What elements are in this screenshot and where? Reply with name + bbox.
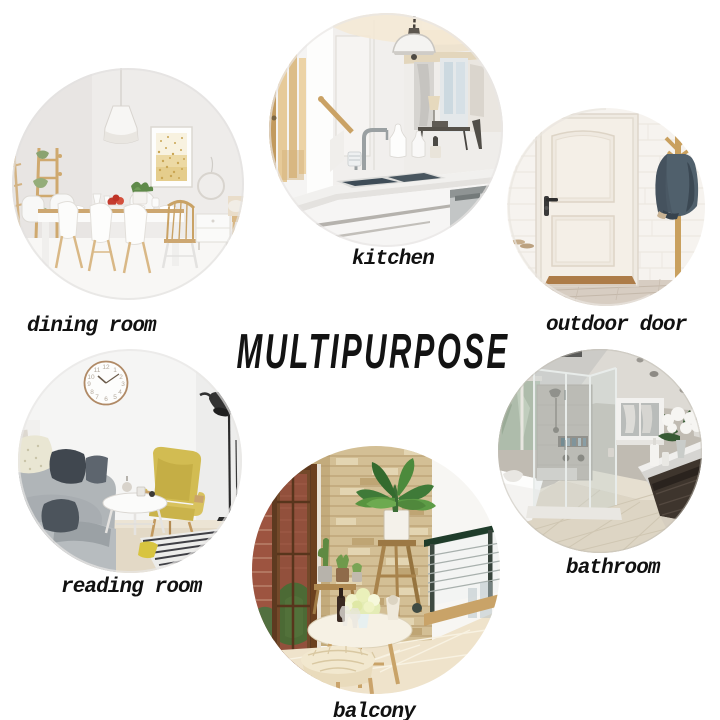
svg-text:reading room: reading room: [61, 576, 203, 599]
svg-text:bathroom: bathroom: [566, 557, 661, 580]
svg-text:1: 1: [113, 367, 117, 374]
svg-text:2: 2: [119, 374, 123, 381]
svg-text:6: 6: [104, 396, 108, 403]
svg-text:outdoor door: outdoor door: [546, 314, 688, 337]
svg-text:5: 5: [113, 394, 117, 401]
svg-text:9: 9: [87, 381, 91, 388]
svg-text:balcony: balcony: [333, 701, 417, 720]
svg-text:4: 4: [118, 389, 122, 396]
svg-text:10: 10: [87, 374, 95, 381]
svg-text:kitchen: kitchen: [352, 248, 434, 271]
svg-text:12: 12: [102, 364, 110, 371]
svg-text:MULTIPURPOSE: MULTIPURPOSE: [237, 324, 510, 379]
svg-text:8: 8: [90, 389, 94, 396]
svg-text:dining room: dining room: [27, 315, 157, 338]
svg-text:7: 7: [95, 394, 99, 401]
svg-text:11: 11: [94, 367, 101, 374]
svg-text:3: 3: [121, 381, 125, 388]
